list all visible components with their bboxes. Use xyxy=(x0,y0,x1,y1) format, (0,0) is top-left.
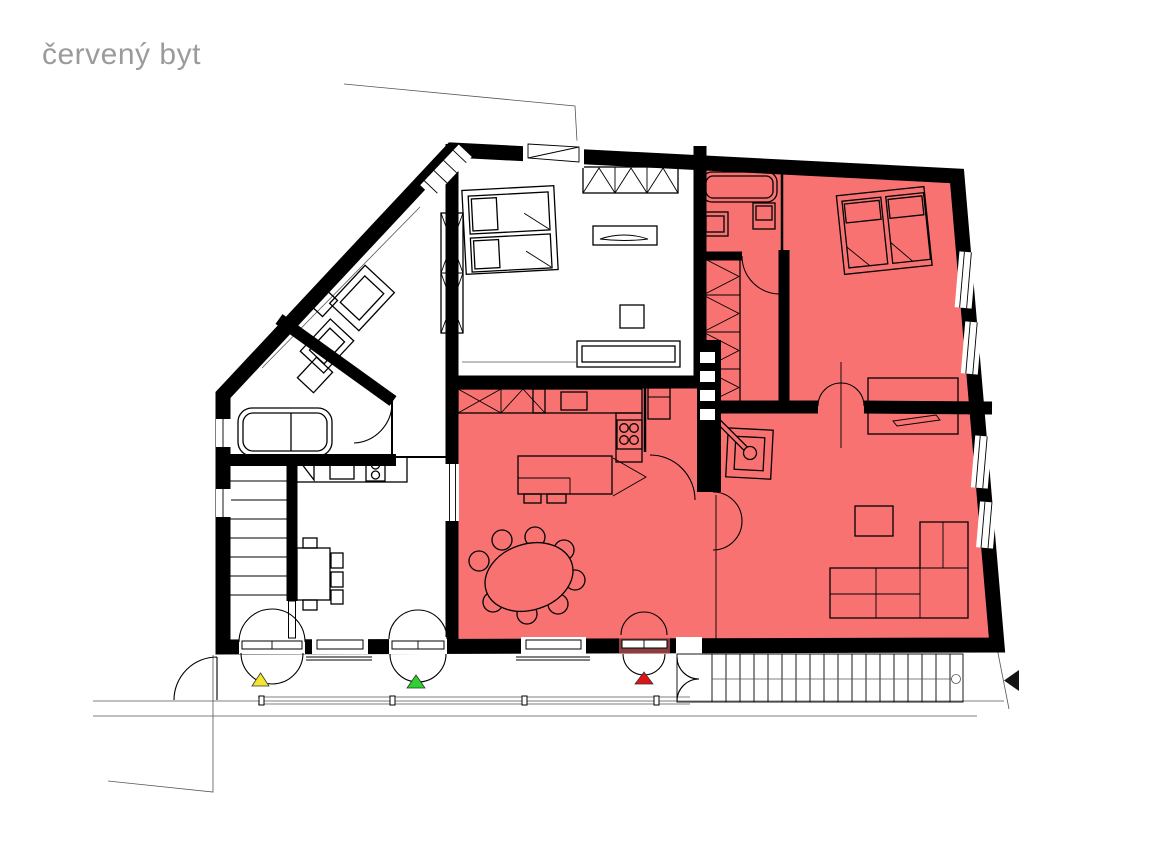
staircase xyxy=(229,462,290,595)
console-desk xyxy=(593,226,657,245)
direction-marker-black xyxy=(1004,670,1019,691)
stool xyxy=(620,305,644,328)
wardrobe-top xyxy=(583,167,678,193)
exterior-stair xyxy=(677,654,963,702)
entrance-door-4 xyxy=(676,637,702,654)
entrance-door-1 xyxy=(239,637,305,654)
bench xyxy=(577,341,680,367)
handrail-end xyxy=(952,675,961,684)
window-interior xyxy=(445,464,459,521)
window-bay-1 xyxy=(306,637,372,660)
railing-post xyxy=(390,696,395,705)
wall-diagonal-inner xyxy=(279,319,393,401)
window-left-1 xyxy=(216,419,231,447)
window-left-2 xyxy=(216,489,231,517)
small-dining-table xyxy=(297,538,343,610)
railing-post xyxy=(259,696,264,705)
entrance-door-2 xyxy=(389,637,447,654)
railing-post xyxy=(654,696,659,705)
entrance-marker-yellow xyxy=(252,673,269,686)
double-bed-white-room xyxy=(462,186,558,275)
floor-plan-page: červený byt xyxy=(0,0,1152,864)
bathtub-white xyxy=(238,408,332,456)
washbasin xyxy=(297,357,332,392)
interior-door-leaf xyxy=(289,601,296,638)
floor-plan-drawing xyxy=(0,0,1152,864)
entrance-door-3 xyxy=(619,635,670,654)
railing-post xyxy=(522,696,527,705)
top-window xyxy=(523,138,584,168)
window-bay-2 xyxy=(516,637,590,660)
